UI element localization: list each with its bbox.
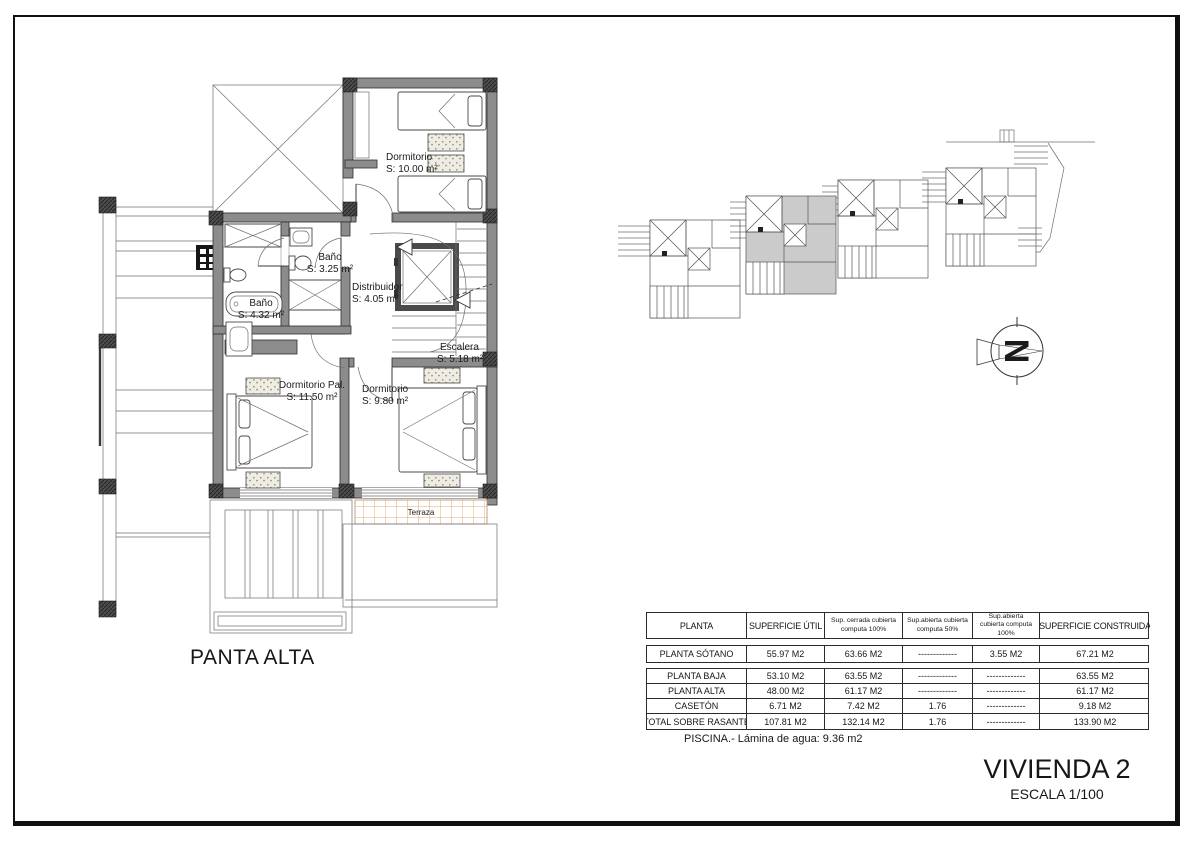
areas-table: PLANTA SUPERFICIE ÚTIL Sup. cerrada cubi… [646,612,1149,730]
site-unit-3 [838,180,928,278]
pergola-strip [99,197,218,617]
table-row-baja: PLANTA BAJA 53.10 M2 63.55 M2 ----------… [647,669,1148,684]
table-row-sotano: PLANTA SÓTANO 55.97 M2 63.66 M2 --------… [646,645,1149,663]
elevator [394,246,456,308]
svg-text:S: 3.25 m²: S: 3.25 m² [307,264,354,275]
floor-plan: Dormitorio S: 10.00 m² Baño S: 3.25 m² B… [99,78,497,633]
svg-text:S: 9.80 m²: S: 9.80 m² [362,396,409,407]
room-label-distribuidor: Distribuidor [352,282,403,293]
room-label-dormitorio-980: Dormitorio [362,384,409,395]
scale-label: ESCALA 1/100 [957,786,1157,802]
room-label-bano-432: Baño [249,298,273,309]
site-unit-1 [650,220,740,318]
header-planta: PLANTA [647,613,747,638]
header-abierta-50: Sup.abierta cubierta computa 50% [903,613,973,638]
areas-table-body: PLANTA BAJA 53.10 M2 63.55 M2 ----------… [646,668,1149,730]
header-superficie-util: SUPERFICIE ÚTIL [747,613,825,638]
lower-pergola [210,500,352,633]
header-superficie-construida: SUPERFICIE CONSTRUIDA [1040,613,1150,638]
table-row-caseton: CASETÓN 6.71 M2 7.42 M2 1.76 -----------… [647,699,1148,714]
bedroom-right-furniture [399,368,486,487]
drawing-sheet: Dormitorio S: 10.00 m² Baño S: 3.25 m² B… [0,0,1200,845]
areas-table-header: PLANTA SUPERFICIE ÚTIL Sup. cerrada cubi… [646,612,1149,639]
site-unit-4 [946,168,1036,266]
room-label-bano-325: Baño [318,252,342,263]
svg-text:S: 11.50 m²: S: 11.50 m² [287,392,339,403]
north-letter: N [997,339,1035,364]
roof-void [213,85,343,213]
svg-text:S: 10.00 m²: S: 10.00 m² [386,164,438,175]
svg-text:S: 4.05 m²: S: 4.05 m² [352,294,399,305]
header-cerrada-100: Sup. cerrada cubierta computa 100% [825,613,903,638]
table-row-total: TOTAL SOBRE RASANTE 107.81 M2 132.14 M2 … [647,714,1148,729]
svg-text:S: 5.18 m²: S: 5.18 m² [437,354,484,365]
pool-note: PISCINA.- Lámina de agua: 9.36 m2 [684,733,863,745]
site-plan [618,130,1095,318]
room-label-dormitorio-10: Dormitorio [386,152,433,163]
room-label-dormitorio-pal: Dormitorio Pal. [279,380,345,391]
room-label-terraza: Terraza [408,508,435,517]
plan-title: PANTA ALTA [190,646,315,670]
table-row-alta: PLANTA ALTA 48.00 M2 61.17 M2 ----------… [647,684,1148,699]
header-abierta-100: Sup.abierta cubierta computa 100% [973,613,1040,638]
north-arrow-icon [977,339,999,365]
svg-text:S: 4.32 m²: S: 4.32 m² [238,310,285,321]
room-label-escalera: Escalera [440,342,479,353]
north-compass: N [977,317,1043,385]
project-title: VIVIENDA 2 [957,754,1157,785]
